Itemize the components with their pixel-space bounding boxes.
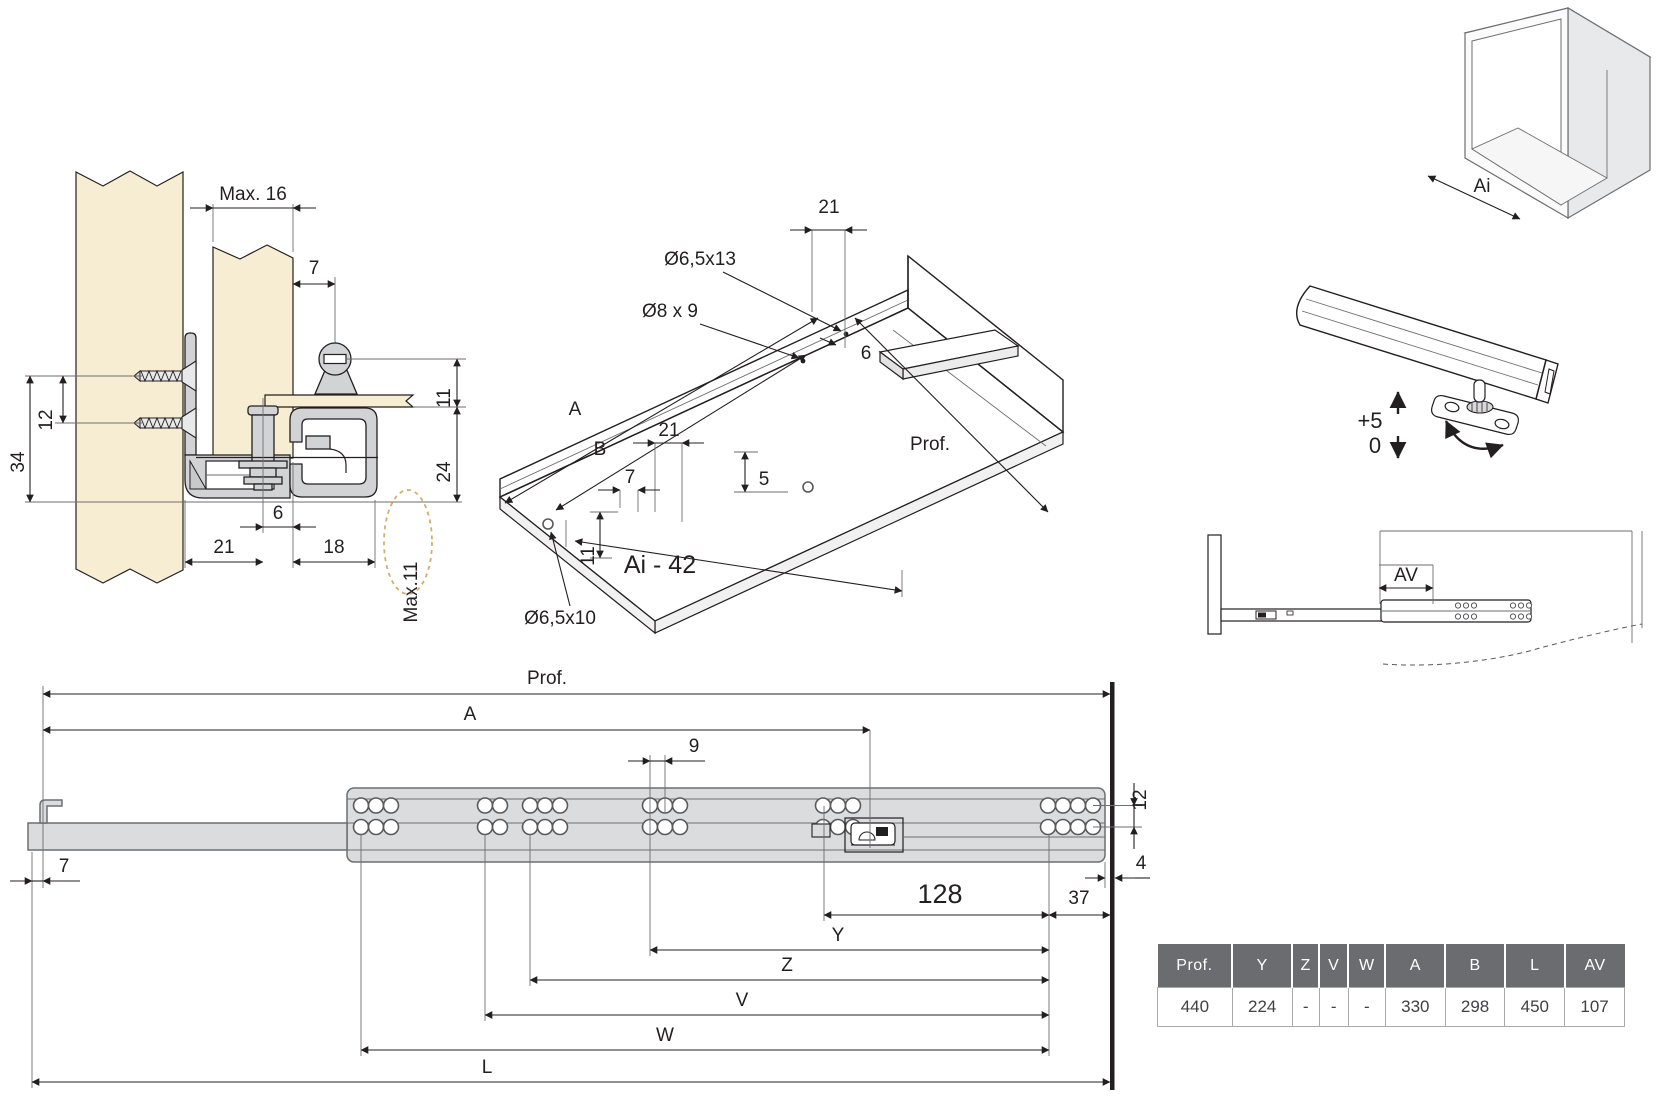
front-hole [543,519,553,529]
dim-b-drawer: B [594,439,607,460]
table-header-y: Y [1232,944,1292,988]
table-value-v: - [1319,988,1348,1027]
table-value-b: 298 [1445,988,1505,1027]
table-header-w: W [1348,944,1385,988]
dimensions-table: Prof. Y Z V W A B L AV 440 224 - - - 330… [1157,944,1625,1027]
rear-bracket-block [880,330,1018,379]
dim-a-drawer: A [569,399,582,420]
dim-max16: Max. 16 [219,184,287,205]
dim-12-section: 12 [36,409,57,430]
dim-ai-cabinet: Ai [1474,176,1491,197]
dim-11-section: 11 [434,388,455,408]
dim-21-top-drawer: 21 [818,197,839,218]
table-header-a: A [1385,944,1445,988]
dim-6-drawer: 6 [861,343,872,364]
dim-front-hole-drawer: Ø6,5x10 [524,608,596,629]
inner-rail [28,823,347,850]
dim-prof-side: Prof. [527,668,567,689]
extended-rail [1221,609,1383,621]
dim-128-side: 128 [917,879,962,909]
table-value-z: - [1292,988,1319,1027]
dim-21-section: 21 [213,537,234,558]
table-header-av: AV [1565,944,1625,988]
table-value-av: 107 [1565,988,1625,1027]
dim-11-drawer: 11 [578,546,599,566]
technical-drawing-page: Max. 16 7 12 34 11 24 6 21 18 Max.11 [0,0,1676,1108]
dim-24-section: 24 [434,461,455,483]
dim-7-section: 7 [309,258,320,279]
cabinet-panel-dashed [1383,624,1642,665]
table-value-a: 330 [1385,988,1445,1027]
table-header-prof: Prof. [1158,944,1233,988]
slide-extension-drawing: AV [1208,531,1642,665]
section-view-drawing: Max. 16 7 12 34 11 24 6 21 18 Max.11 [8,171,466,622]
cabinet-inner-width-drawing: Ai [1428,8,1650,219]
table-value-w: - [1348,988,1385,1027]
dim-av-extension: AV [1394,565,1418,586]
dim-max11-section: Max.11 [401,562,422,623]
dim-6-section: 6 [273,503,284,524]
dim-4-side: 4 [1136,853,1147,874]
dim-w-side: W [656,1025,674,1046]
dim-9-side: 9 [689,736,700,757]
table-header-row: Prof. Y Z V W A B L AV [1158,944,1625,988]
dim-21-mid-drawer: 21 [658,420,679,441]
dim-34-section: 34 [8,451,29,473]
dim-l-side: L [482,1057,493,1078]
dim-prof-drawer: Prof. [910,434,950,455]
dim-ai42-drawer: Ai - 42 [624,551,696,579]
drawing-canvas: Max. 16 7 12 34 11 24 6 21 18 Max.11 [0,0,1676,1108]
table-value-l: 450 [1505,988,1565,1027]
dim-v-side: V [736,990,749,1011]
dim-y-side: Y [832,925,845,946]
cabinet-back-wall [1110,682,1115,1090]
dim-7-side: 7 [59,856,70,877]
table-header-l: L [1505,944,1565,988]
table-value-row: 440 224 - - - 330 298 450 107 [1158,988,1625,1027]
dim-12-side: 12 [1130,789,1151,810]
drawer-front-panel [1208,535,1221,634]
table-header-v: V [1319,944,1348,988]
table-value-y: 224 [1232,988,1292,1027]
dim-z-side: Z [781,955,793,976]
height-adjustment-drawing: +5 0 [1297,286,1558,458]
adjustment-zero-label: 0 [1369,433,1381,458]
drawer-bottom-panel [265,395,413,407]
dim-pilot-drawer: Ø8 x 9 [642,301,698,322]
slide-side-view-drawing: Prof. A 9 7 12 4 128 37 Y Z V [10,668,1151,1090]
table-value-prof: 440 [1158,988,1233,1027]
table-header-z: Z [1292,944,1319,988]
drawer-bottom-view-drawing: 21 Ø6,5x13 Ø8 x 9 6 A B 21 7 5 11 [500,197,1063,633]
side-hole [803,482,813,492]
dim-37-side: 37 [1068,888,1089,909]
adjustment-up-label: +5 [1357,408,1382,433]
dim-slot-drawer: Ø6,5x13 [664,249,736,270]
dim-18-section: 18 [323,537,344,558]
table-header-b: B [1445,944,1505,988]
dim-7-drawer: 7 [625,467,636,488]
adjustment-cam [315,277,357,394]
dim-5-drawer: 5 [759,469,770,490]
dim-a-side: A [464,704,477,725]
